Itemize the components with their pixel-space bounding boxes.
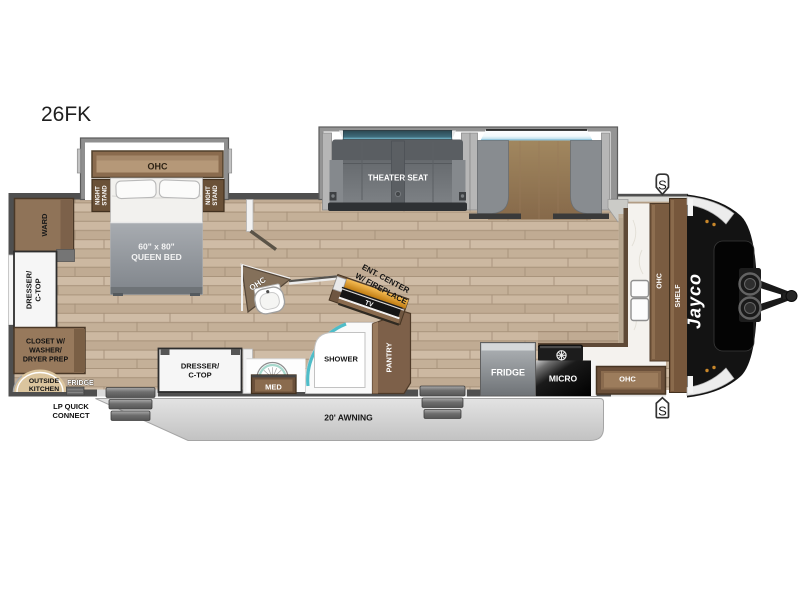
svg-text:DRESSER/: DRESSER/ [25, 270, 34, 309]
svg-text:60" x 80": 60" x 80" [138, 242, 174, 252]
svg-text:NIGHT: NIGHT [96, 186, 102, 205]
svg-text:20' AWNING: 20' AWNING [324, 413, 373, 423]
svg-text:STAND: STAND [103, 185, 109, 206]
svg-text:MICRO: MICRO [549, 374, 578, 384]
svg-text:NIGHT: NIGHT [206, 186, 212, 205]
svg-text:FRIDGE: FRIDGE [67, 380, 94, 387]
svg-text:LP QUICK: LP QUICK [53, 402, 89, 411]
svg-text:DRYER PREP: DRYER PREP [23, 357, 69, 364]
svg-text:C-TOP: C-TOP [34, 278, 43, 301]
svg-text:OHC: OHC [619, 375, 636, 384]
svg-text:OHC: OHC [148, 162, 169, 172]
svg-text:S: S [658, 178, 667, 193]
svg-text:S: S [658, 404, 667, 419]
svg-text:WASHER/: WASHER/ [29, 348, 62, 355]
svg-text:CLOSET W/: CLOSET W/ [26, 339, 65, 346]
svg-text:26FK: 26FK [41, 103, 91, 126]
svg-text:MED: MED [265, 383, 282, 392]
svg-text:PANTRY: PANTRY [385, 343, 394, 373]
svg-text:SHOWER: SHOWER [324, 355, 358, 364]
svg-text:OHC: OHC [657, 273, 664, 289]
svg-text:CONNECT: CONNECT [52, 411, 90, 420]
svg-text:C-TOP: C-TOP [188, 371, 211, 380]
svg-text:KITCHEN: KITCHEN [29, 386, 59, 393]
svg-text:STAND: STAND [213, 185, 219, 206]
svg-text:THEATER SEAT: THEATER SEAT [368, 174, 428, 183]
svg-text:FRIDGE: FRIDGE [491, 368, 525, 378]
svg-text:DRESSER/: DRESSER/ [181, 362, 220, 371]
svg-text:WARD: WARD [40, 213, 49, 236]
svg-text:QUEEN BED: QUEEN BED [131, 252, 182, 262]
svg-text:OUTSIDE: OUTSIDE [29, 378, 60, 385]
svg-text:Jayco: Jayco [685, 273, 705, 329]
svg-text:SHELF: SHELF [675, 284, 682, 308]
